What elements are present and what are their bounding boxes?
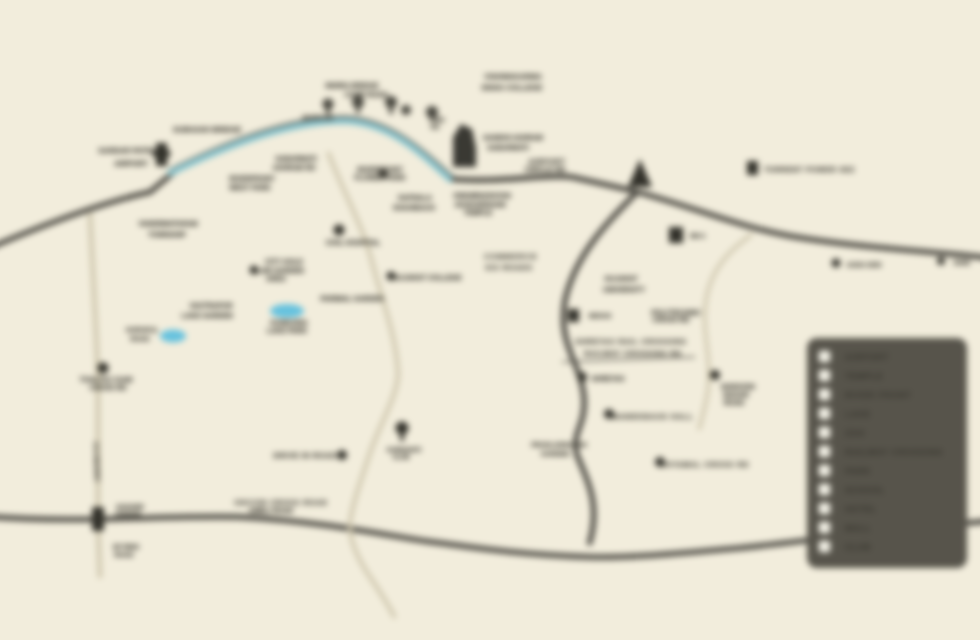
svg-text:IIM A: IIM A [690, 233, 706, 240]
svg-text:INDIRA BRIDGE: INDIRA BRIDGE [325, 83, 378, 90]
svg-text:ASHRAM RD: ASHRAM RD [273, 165, 316, 172]
svg-text:ENGG COLLEGE: ENGG COLLEGE [482, 83, 542, 92]
svg-text:CLUB: CLUB [845, 542, 871, 552]
svg-text:CIRCLE RD: CIRCLE RD [525, 165, 566, 174]
svg-text:TORRENT POWER SEZ: TORRENT POWER SEZ [764, 167, 855, 174]
svg-text:VASTRAPUR: VASTRAPUR [189, 303, 232, 310]
svg-text:LAKE: LAKE [845, 409, 871, 419]
svg-text:AIRPORT: AIRPORT [114, 159, 148, 168]
svg-text:ZOO: ZOO [845, 428, 865, 438]
svg-text:VISHWAKARMA: VISHWAKARMA [484, 72, 542, 81]
svg-text:CLUB: CLUB [393, 455, 410, 461]
svg-text:CHOKDI: CHOKDI [115, 511, 141, 518]
svg-text:SIX ROADS: SIX ROADS [485, 265, 533, 272]
svg-text:MALL: MALL [845, 523, 871, 533]
svg-text:ROAD: ROAD [114, 552, 133, 559]
svg-text:RD: RD [431, 125, 440, 131]
svg-text:KANKARIA: KANKARIA [270, 320, 307, 327]
svg-text:SWAMINARAYAN: SWAMINARAYAN [453, 193, 510, 200]
svg-text:CROSS RD: CROSS RD [90, 385, 127, 392]
svg-text:RIVERFRONT: RIVERFRONT [229, 176, 275, 183]
svg-text:SP RING: SP RING [113, 544, 140, 551]
svg-text:ISKCON CROSS ROAD: ISKCON CROSS ROAD [234, 500, 328, 507]
svg-text:SHREYAS: SHREYAS [591, 376, 625, 383]
svg-text:UNIVERSITY: UNIVERSITY [603, 287, 645, 294]
svg-text:RAILWAY CROSSING RD: RAILWAY CROSSING RD [584, 351, 682, 358]
svg-text:SABARMATI: SABARMATI [275, 156, 317, 163]
svg-text:POLYTECHNIC: POLYTECHNIC [651, 310, 701, 317]
svg-text:CAMP ROAD: CAMP ROAD [344, 92, 387, 99]
svg-text:DRIVE IN ROAD: DRIVE IN ROAD [273, 451, 336, 460]
svg-text:LAW GARDEN: LAW GARDEN [256, 268, 304, 275]
svg-text:SUBHASH BRIDGE: SUBHASH BRIDGE [173, 125, 241, 134]
svg-text:GARDEN: GARDEN [541, 451, 569, 458]
svg-text:AUDA GDN: AUDA GDN [847, 262, 882, 269]
svg-text:PARK: PARK [845, 466, 871, 476]
svg-text:GANDHI ASHRAM: GANDHI ASHRAM [483, 135, 543, 142]
svg-text:WEST PARK: WEST PARK [229, 185, 270, 192]
svg-text:SABARMATI: SABARMATI [487, 145, 529, 152]
svg-text:LAKE PARK: LAKE PARK [267, 328, 307, 335]
svg-text:CIVIL HOSPITAL: CIVIL HOSPITAL [326, 240, 381, 247]
svg-text:VANDEMATARAM: VANDEMATARAM [138, 221, 197, 228]
svg-text:HOTEL: HOTEL [845, 504, 877, 514]
svg-text:SANAND: SANAND [116, 504, 144, 511]
svg-text:FLOWER PARK: FLOWER PARK [354, 175, 406, 182]
svg-text:PARIMAL GARDEN: PARIMAL GARDEN [320, 296, 384, 303]
svg-text:NAGAR: NAGAR [723, 392, 749, 399]
svg-text:RIVER DR: RIVER DR [302, 115, 333, 122]
svg-text:GURUKUL: GURUKUL [126, 327, 159, 334]
svg-text:MANEKBAUG HALL: MANEKBAUG HALL [613, 414, 694, 421]
svg-text:DAFNALA: DAFNALA [398, 195, 432, 202]
svg-text:TEMPLE: TEMPLE [464, 210, 493, 217]
svg-text:GUJARAT: GUJARAT [604, 276, 638, 283]
svg-text:PARK: PARK [954, 261, 971, 267]
svg-text:ROAD: ROAD [130, 336, 149, 343]
svg-text:CITY GOLD: CITY GOLD [265, 259, 303, 266]
svg-text:RIVER FRONT: RIVER FRONT [845, 390, 911, 400]
svg-text:SHAHIBAUG: SHAHIBAUG [393, 205, 436, 212]
svg-text:NEXUS: NEXUS [589, 313, 612, 320]
svg-text:RIVERFRONT: RIVERFRONT [357, 167, 403, 174]
svg-text:CROSS RD: CROSS RD [653, 317, 690, 324]
svg-text:SARDAR PATEL: SARDAR PATEL [98, 146, 156, 155]
svg-text:RAILWAY CROSSING: RAILWAY CROSSING [845, 447, 943, 457]
svg-text:LAKE GARDEN: LAKE GARDEN [181, 313, 232, 320]
svg-text:AKSHARDHAM: AKSHARDHAM [455, 202, 506, 209]
svg-text:AREA: AREA [266, 276, 286, 283]
svg-text:AMBLI ROAD: AMBLI ROAD [249, 508, 294, 515]
svg-text:KARNAVATI: KARNAVATI [387, 448, 421, 454]
svg-text:GUJARAT COLLEGE: GUJARAT COLLEGE [392, 275, 461, 282]
svg-text:SHYAMAL CROSS RD: SHYAMAL CROSS RD [661, 462, 750, 469]
svg-text:TOWNSHIP: TOWNSHIP [148, 232, 186, 239]
svg-text:TEMPLE: TEMPLE [845, 371, 883, 381]
svg-text:RING: RING [430, 118, 445, 124]
svg-text:ROAD: ROAD [724, 400, 745, 407]
svg-text:THALTEJ GAM: THALTEJ GAM [80, 375, 133, 384]
svg-text:PRAHLADNAGAR: PRAHLADNAGAR [531, 442, 587, 449]
svg-text:SHREYAS RAIL CROSSING: SHREYAS RAIL CROSSING [575, 339, 687, 346]
svg-text:SCHOOL: SCHOOL [845, 485, 885, 495]
svg-text:COMMERCE: COMMERCE [484, 254, 538, 261]
svg-text:NARAYAN: NARAYAN [721, 384, 755, 391]
svg-text:AIRPORT: AIRPORT [845, 352, 889, 362]
